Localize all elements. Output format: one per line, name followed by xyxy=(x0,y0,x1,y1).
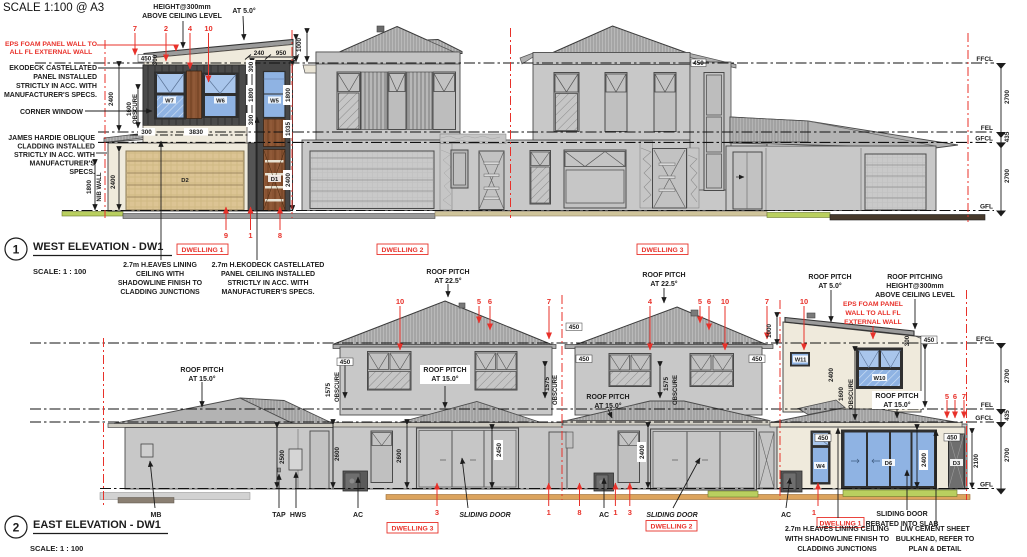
svg-text:2: 2 xyxy=(13,521,20,535)
svg-text:1800: 1800 xyxy=(86,180,93,195)
svg-text:L/W CEMENT SHEET: L/W CEMENT SHEET xyxy=(900,526,970,533)
svg-text:D6: D6 xyxy=(885,461,893,467)
svg-text:5: 5 xyxy=(477,297,481,306)
svg-text:HEIGHT@300mm: HEIGHT@300mm xyxy=(886,283,943,290)
svg-text:GFCL: GFCL xyxy=(975,136,993,143)
svg-text:7: 7 xyxy=(547,297,551,306)
svg-text:D1: D1 xyxy=(271,177,279,183)
svg-text:OBSCURE: OBSCURE xyxy=(553,375,559,405)
svg-text:DWELLING 3: DWELLING 3 xyxy=(392,526,434,533)
svg-text:EKODECK CASTELLATED: EKODECK CASTELLATED xyxy=(9,65,97,72)
svg-text:300: 300 xyxy=(141,129,152,136)
svg-text:MB: MB xyxy=(151,512,162,519)
svg-text:1000: 1000 xyxy=(766,324,773,339)
svg-text:2.7m H.EKODECK CASTELLATED: 2.7m H.EKODECK CASTELLATED xyxy=(212,262,325,269)
svg-text:JAMES HARDIE OBLIQUE: JAMES HARDIE OBLIQUE xyxy=(8,135,95,142)
svg-text:ABOVE CEILING LEVEL: ABOVE CEILING LEVEL xyxy=(142,13,222,20)
svg-text:AT 15.0°: AT 15.0° xyxy=(431,375,458,383)
svg-text:1: 1 xyxy=(248,231,252,240)
svg-text:SCALE 1:100 @ A3: SCALE 1:100 @ A3 xyxy=(3,2,104,14)
svg-text:300: 300 xyxy=(248,114,255,125)
svg-text:1800: 1800 xyxy=(248,88,255,103)
svg-text:6: 6 xyxy=(707,297,711,306)
svg-text:PLAN & DETAIL: PLAN & DETAIL xyxy=(909,546,962,553)
svg-text:1575: 1575 xyxy=(325,383,332,398)
svg-text:HWS: HWS xyxy=(290,512,307,519)
svg-text:OBSCURE: OBSCURE xyxy=(673,375,679,405)
svg-text:AC: AC xyxy=(599,512,609,519)
svg-text:2500: 2500 xyxy=(279,450,286,465)
svg-text:435: 435 xyxy=(1004,410,1011,421)
svg-text:7: 7 xyxy=(133,24,137,33)
svg-text:OBSCURE: OBSCURE xyxy=(849,379,855,409)
svg-text:8: 8 xyxy=(577,508,581,517)
svg-text:EAST ELEVATION - DW1: EAST ELEVATION - DW1 xyxy=(33,519,161,531)
svg-text:ROOF PITCH: ROOF PITCH xyxy=(875,393,918,400)
svg-text:2600: 2600 xyxy=(334,447,341,462)
svg-text:AT 15.0°: AT 15.0° xyxy=(188,375,215,383)
svg-text:OBSCURE: OBSCURE xyxy=(133,94,139,124)
svg-text:PANEL INSTALLED: PANEL INSTALLED xyxy=(33,74,97,81)
svg-text:W11: W11 xyxy=(795,358,807,364)
svg-text:PANEL CEILING INSTALLED: PANEL CEILING INSTALLED xyxy=(221,271,315,278)
svg-text:W4: W4 xyxy=(816,464,825,470)
svg-text:450: 450 xyxy=(141,56,152,63)
svg-text:2100: 2100 xyxy=(973,454,980,469)
svg-text:1575: 1575 xyxy=(663,377,670,392)
svg-text:2700: 2700 xyxy=(1004,448,1011,463)
svg-text:2600: 2600 xyxy=(396,449,403,464)
svg-text:SPECS.: SPECS. xyxy=(69,169,95,176)
svg-text:10: 10 xyxy=(721,297,729,306)
svg-text:2700: 2700 xyxy=(1004,169,1011,184)
svg-text:TAP: TAP xyxy=(272,512,286,519)
svg-text:SLIDING DOOR: SLIDING DOOR xyxy=(876,511,927,518)
svg-text:1575: 1575 xyxy=(544,377,551,392)
svg-text:ROOF PITCH: ROOF PITCH xyxy=(586,394,629,401)
svg-text:450: 450 xyxy=(947,435,958,442)
svg-text:ABOVE CEILING LEVEL: ABOVE CEILING LEVEL xyxy=(875,292,955,299)
svg-text:SLIDING DOOR: SLIDING DOOR xyxy=(646,512,697,519)
svg-text:300: 300 xyxy=(248,61,255,72)
svg-text:2700: 2700 xyxy=(1004,369,1011,384)
svg-text:D3: D3 xyxy=(953,461,961,467)
svg-text:MANUFACTURER'S: MANUFACTURER'S xyxy=(30,161,96,168)
svg-text:1600: 1600 xyxy=(838,387,845,402)
svg-text:2.7m H.EAVES LINING CEILING: 2.7m H.EAVES LINING CEILING xyxy=(785,526,890,533)
svg-text:240: 240 xyxy=(254,50,265,57)
svg-text:SHADOWLINE FINISH TO: SHADOWLINE FINISH TO xyxy=(118,280,203,287)
svg-text:2400: 2400 xyxy=(285,173,292,188)
svg-text:ROOF PITCH: ROOF PITCH xyxy=(426,269,469,276)
svg-text:ROOF PITCH: ROOF PITCH xyxy=(423,367,466,374)
svg-text:1: 1 xyxy=(13,243,20,257)
svg-text:AT 15.0°: AT 15.0° xyxy=(594,402,621,410)
svg-text:CLADDING JUNCTIONS: CLADDING JUNCTIONS xyxy=(120,289,200,296)
svg-text:DWELLING 2: DWELLING 2 xyxy=(382,247,424,254)
svg-text:EPS FOAM PANEL: EPS FOAM PANEL xyxy=(843,301,903,308)
svg-text:CLADDING JUNCTIONS: CLADDING JUNCTIONS xyxy=(797,546,877,553)
svg-text:450: 450 xyxy=(752,356,763,363)
svg-text:STRICTLY IN ACC. WITH: STRICTLY IN ACC. WITH xyxy=(16,83,97,90)
svg-text:7: 7 xyxy=(962,392,966,401)
svg-text:2400: 2400 xyxy=(921,453,928,468)
svg-text:5: 5 xyxy=(698,297,702,306)
svg-text:8: 8 xyxy=(278,231,282,240)
svg-text:2450: 2450 xyxy=(496,443,503,458)
svg-text:CORNER WINDOW: CORNER WINDOW xyxy=(20,109,83,116)
svg-text:9: 9 xyxy=(224,231,228,240)
svg-text:W6: W6 xyxy=(216,99,225,105)
svg-text:1000: 1000 xyxy=(296,38,303,53)
svg-text:2700: 2700 xyxy=(1004,90,1011,105)
svg-text:300: 300 xyxy=(152,54,159,65)
svg-text:3: 3 xyxy=(435,508,439,517)
svg-text:AT 5.0°: AT 5.0° xyxy=(232,7,255,15)
svg-text:AT 22.5°: AT 22.5° xyxy=(650,280,677,288)
svg-text:2400: 2400 xyxy=(108,92,115,107)
svg-text:MANUFACTURER'S SPECS.: MANUFACTURER'S SPECS. xyxy=(4,92,97,99)
svg-text:ALL FL EXTERNAL WALL: ALL FL EXTERNAL WALL xyxy=(10,49,93,56)
svg-text:7: 7 xyxy=(765,297,769,306)
svg-text:1600: 1600 xyxy=(126,102,133,117)
svg-text:SLIDING DOOR: SLIDING DOOR xyxy=(459,512,510,519)
svg-text:BULKHEAD, REFER TO: BULKHEAD, REFER TO xyxy=(896,536,975,543)
svg-text:MANUFACTURER'S SPECS.: MANUFACTURER'S SPECS. xyxy=(221,289,314,296)
svg-text:6: 6 xyxy=(488,297,492,306)
svg-text:NIB WALL: NIB WALL xyxy=(97,172,103,201)
svg-text:FEL: FEL xyxy=(981,125,993,132)
svg-text:GFCL: GFCL xyxy=(975,415,993,422)
svg-text:450: 450 xyxy=(924,337,935,344)
svg-text:OBSCURE: OBSCURE xyxy=(335,372,341,402)
svg-text:1: 1 xyxy=(613,508,617,517)
svg-text:ROOF PITCH: ROOF PITCH xyxy=(642,272,685,279)
svg-text:GFL: GFL xyxy=(980,482,993,489)
svg-text:DWELLING 2: DWELLING 2 xyxy=(651,524,693,531)
svg-text:450: 450 xyxy=(818,435,829,442)
svg-text:CEILING WITH: CEILING WITH xyxy=(136,271,184,278)
svg-text:EFCL: EFCL xyxy=(976,336,993,343)
svg-text:3830: 3830 xyxy=(189,129,204,136)
svg-text:FEL: FEL xyxy=(981,402,993,409)
svg-text:1800: 1800 xyxy=(285,88,292,103)
svg-text:EXTERNAL WALL: EXTERNAL WALL xyxy=(844,319,902,326)
svg-text:CLADDING INSTALLED: CLADDING INSTALLED xyxy=(17,144,95,151)
svg-text:6: 6 xyxy=(953,392,957,401)
svg-text:ROOF PITCH: ROOF PITCH xyxy=(180,367,223,374)
svg-text:SCALE: 1 : 100: SCALE: 1 : 100 xyxy=(33,267,86,276)
svg-text:435: 435 xyxy=(1004,131,1011,142)
svg-text:HEIGHT@300mm: HEIGHT@300mm xyxy=(153,4,210,11)
svg-text:5: 5 xyxy=(945,392,949,401)
svg-text:2400: 2400 xyxy=(110,175,117,190)
svg-text:GFL: GFL xyxy=(980,204,993,211)
svg-text:EPS FOAM PANEL WALL TO: EPS FOAM PANEL WALL TO xyxy=(5,41,97,48)
svg-text:10: 10 xyxy=(396,297,404,306)
svg-text:ROOF PITCHING: ROOF PITCHING xyxy=(887,274,943,281)
svg-text:10: 10 xyxy=(204,24,212,33)
svg-text:SCALE: 1 : 100: SCALE: 1 : 100 xyxy=(30,544,83,553)
svg-text:WITH SHADOWLINE FINISH TO: WITH SHADOWLINE FINISH TO xyxy=(785,536,890,543)
svg-text:DWELLING 1: DWELLING 1 xyxy=(182,247,224,254)
svg-text:2400: 2400 xyxy=(639,445,646,460)
svg-text:2: 2 xyxy=(164,24,168,33)
svg-text:WALL TO ALL FL: WALL TO ALL FL xyxy=(845,310,900,317)
svg-text:450: 450 xyxy=(569,324,580,331)
svg-text:ROOF PITCH: ROOF PITCH xyxy=(808,274,851,281)
svg-text:450: 450 xyxy=(579,356,590,363)
svg-text:AC: AC xyxy=(353,512,363,519)
svg-text:300: 300 xyxy=(904,335,911,346)
svg-text:450: 450 xyxy=(340,359,351,366)
svg-text:3: 3 xyxy=(628,508,632,517)
svg-text:AT 15.0°: AT 15.0° xyxy=(883,401,910,409)
svg-text:1: 1 xyxy=(547,508,551,517)
svg-text:AT 5.0°: AT 5.0° xyxy=(818,282,841,290)
svg-text:DWELLING 3: DWELLING 3 xyxy=(642,247,684,254)
svg-text:WEST ELEVATION - DW1: WEST ELEVATION - DW1 xyxy=(33,241,163,253)
svg-text:STRICTLY IN ACC. WITH: STRICTLY IN ACC. WITH xyxy=(14,152,95,159)
svg-text:AC: AC xyxy=(781,512,791,519)
svg-text:2400: 2400 xyxy=(828,368,835,383)
svg-text:FFCL: FFCL xyxy=(976,56,993,63)
svg-text:D2: D2 xyxy=(181,178,188,184)
svg-text:STRICTLY IN ACC. WITH: STRICTLY IN ACC. WITH xyxy=(227,280,308,287)
svg-text:2.7m H.EAVES LINING: 2.7m H.EAVES LINING xyxy=(123,262,197,269)
svg-text:AT 22.5°: AT 22.5° xyxy=(434,277,461,285)
svg-text:1035: 1035 xyxy=(285,122,292,137)
svg-text:10: 10 xyxy=(800,297,808,306)
svg-text:W10: W10 xyxy=(874,376,886,382)
svg-text:W5: W5 xyxy=(270,99,279,105)
svg-text:W7: W7 xyxy=(165,99,174,105)
svg-text:950: 950 xyxy=(276,50,287,57)
svg-text:1: 1 xyxy=(812,508,816,517)
